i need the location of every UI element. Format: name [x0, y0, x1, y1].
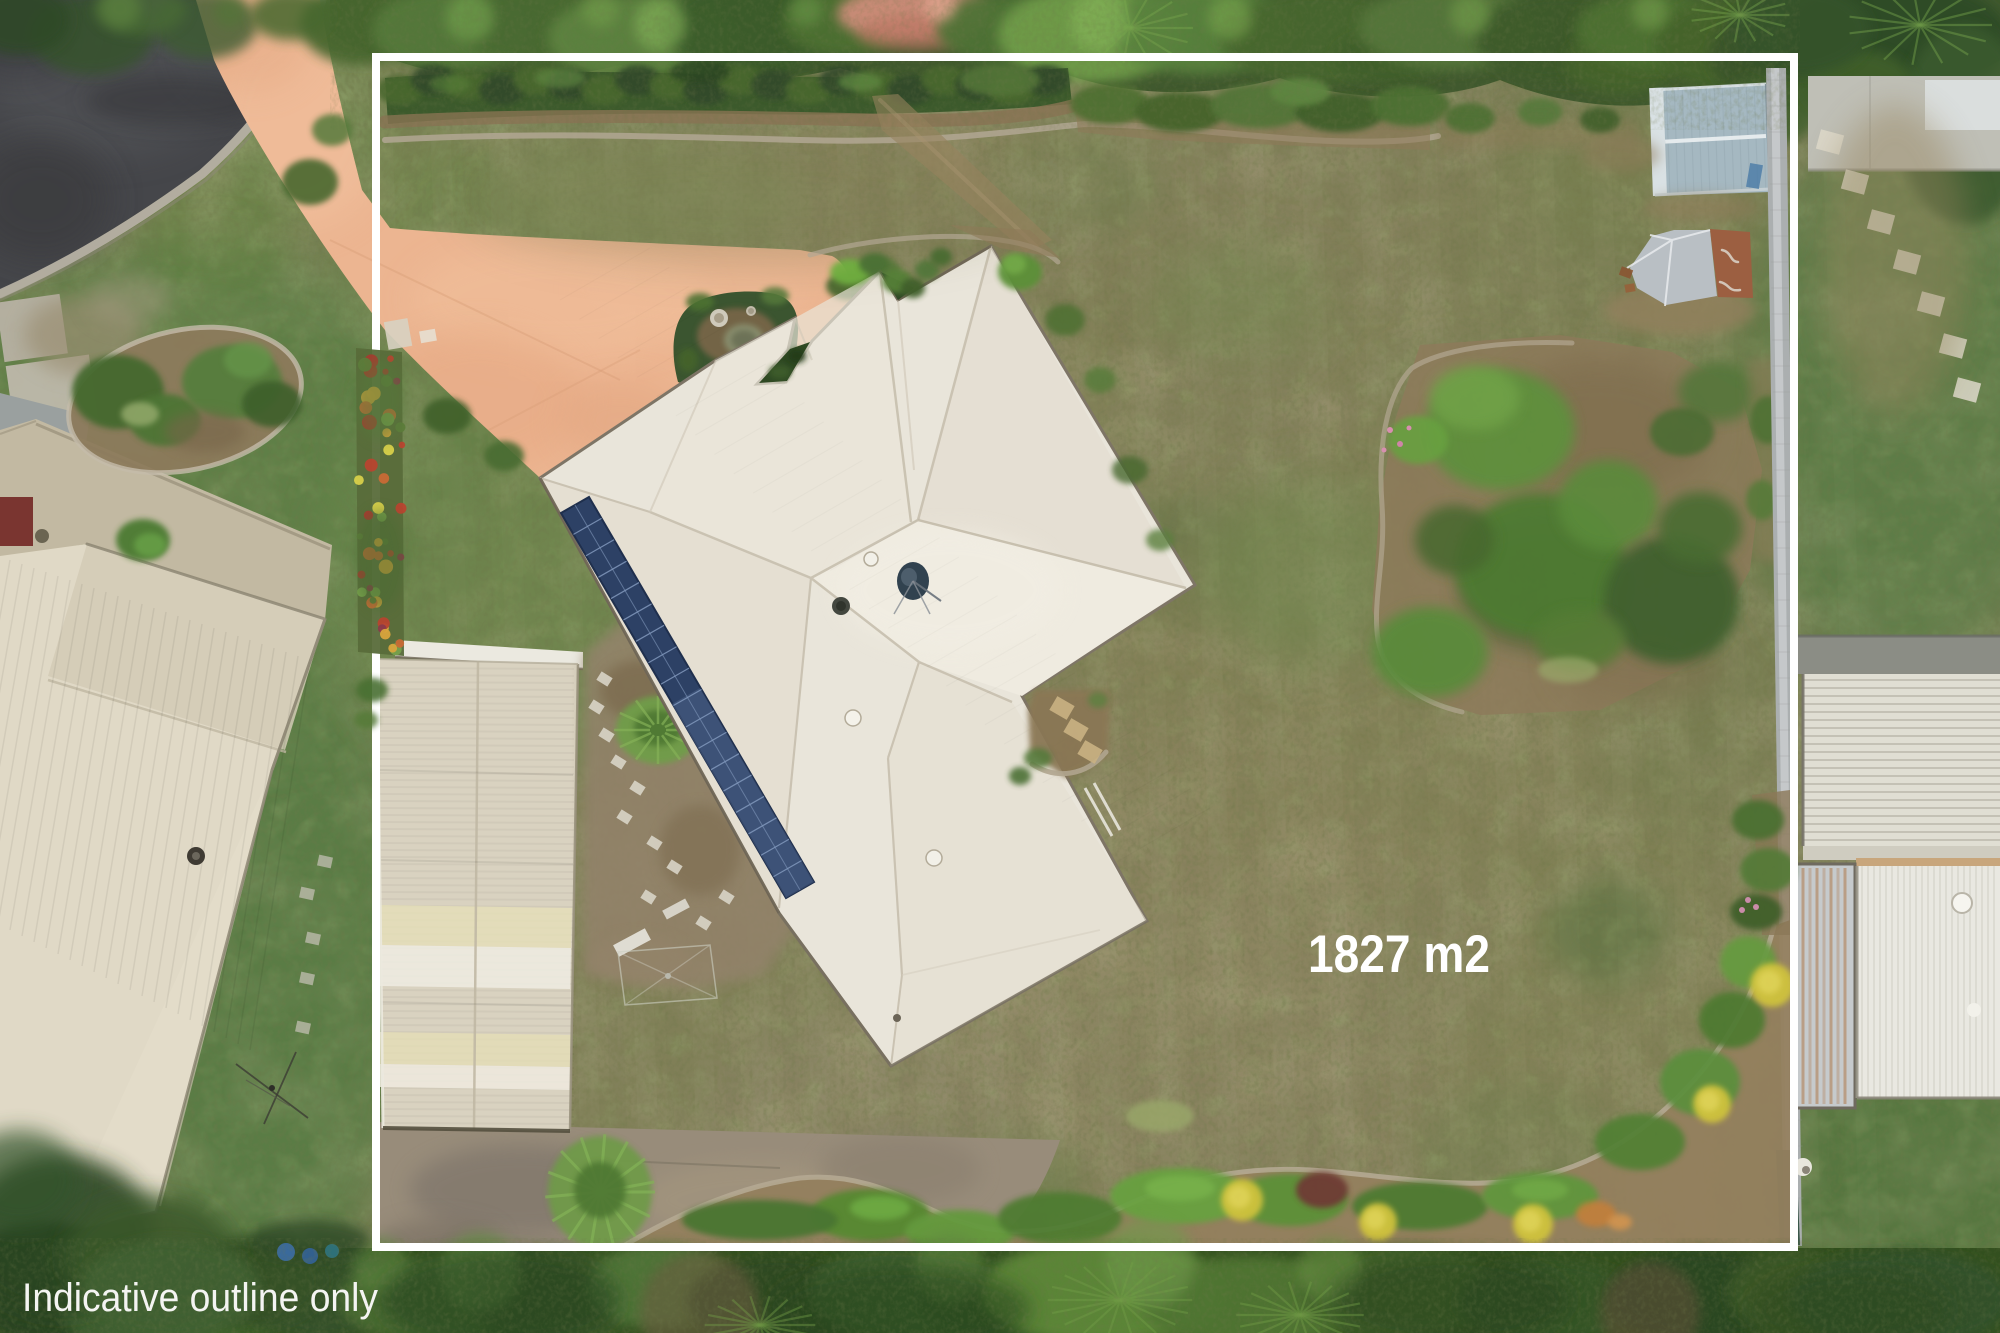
svg-text:1827 m2: 1827 m2: [1308, 925, 1490, 984]
svg-text:Indicative outline only: Indicative outline only: [22, 1276, 378, 1320]
